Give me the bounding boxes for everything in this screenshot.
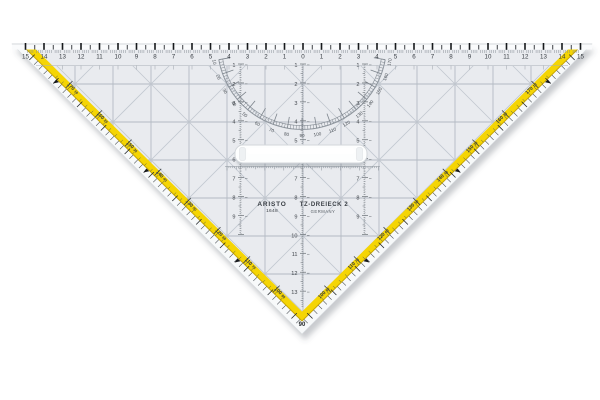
svg-text:9: 9 [232, 214, 235, 220]
svg-text:1: 1 [232, 63, 235, 69]
svg-text:5: 5 [232, 139, 235, 145]
svg-text:13: 13 [540, 54, 547, 61]
svg-text:2: 2 [294, 82, 297, 88]
svg-text:8: 8 [356, 195, 359, 201]
svg-text:3: 3 [246, 54, 250, 61]
set-square-photo: 1020304050607080901001101201301401501601… [0, 0, 600, 400]
top-ruler: 0123456789101112131415123456789101112131… [12, 43, 592, 70]
svg-text:14: 14 [559, 54, 566, 61]
svg-text:2: 2 [232, 82, 235, 88]
svg-text:9: 9 [135, 54, 139, 61]
brand-model-number: 1648 [266, 209, 278, 214]
svg-text:9: 9 [356, 214, 359, 220]
svg-text:3: 3 [294, 101, 297, 107]
svg-text:11: 11 [96, 54, 103, 61]
svg-text:7: 7 [431, 54, 435, 61]
svg-text:5: 5 [294, 139, 297, 145]
tip-90-degree-label: 90 [299, 322, 306, 328]
svg-text:2: 2 [338, 54, 342, 61]
svg-text:9: 9 [468, 54, 472, 61]
svg-text:5: 5 [209, 54, 213, 61]
svg-text:7: 7 [232, 177, 235, 183]
svg-text:4: 4 [232, 120, 235, 126]
svg-text:10: 10 [291, 233, 297, 239]
brand-name: ARISTO [257, 201, 286, 208]
svg-text:12: 12 [522, 54, 529, 61]
svg-text:9: 9 [294, 214, 297, 220]
set-square-drawing: 1020304050607080901001101201301401501601… [0, 0, 600, 400]
svg-text:12: 12 [78, 54, 85, 61]
svg-text:7: 7 [294, 177, 297, 183]
svg-text:14: 14 [41, 54, 48, 61]
svg-text:1: 1 [320, 54, 324, 61]
country-of-origin: GERMANY [311, 209, 336, 214]
grip-handle [235, 145, 367, 167]
svg-text:12: 12 [291, 271, 297, 277]
svg-text:7: 7 [172, 54, 176, 61]
svg-text:10: 10 [115, 54, 122, 61]
svg-text:8: 8 [449, 54, 453, 61]
svg-text:1: 1 [283, 54, 287, 61]
svg-text:4: 4 [294, 120, 297, 126]
svg-text:13: 13 [59, 54, 66, 61]
svg-text:1: 1 [356, 63, 359, 69]
svg-text:15: 15 [577, 54, 584, 61]
svg-text:11: 11 [503, 54, 510, 61]
svg-text:4: 4 [227, 54, 231, 61]
svg-text:2: 2 [356, 82, 359, 88]
svg-text:10: 10 [485, 54, 492, 61]
svg-text:13: 13 [291, 290, 297, 296]
svg-text:6: 6 [412, 54, 416, 61]
svg-text:3: 3 [232, 101, 235, 107]
svg-text:3: 3 [357, 54, 361, 61]
svg-text:2: 2 [264, 54, 268, 61]
svg-text:1: 1 [294, 63, 297, 69]
svg-text:8: 8 [153, 54, 157, 61]
svg-text:7: 7 [356, 177, 359, 183]
svg-text:4: 4 [356, 120, 359, 126]
svg-text:4: 4 [375, 54, 379, 61]
svg-text:11: 11 [292, 252, 298, 258]
svg-text:8: 8 [232, 195, 235, 201]
svg-text:5: 5 [394, 54, 398, 61]
svg-text:15: 15 [22, 54, 29, 61]
svg-text:6: 6 [190, 54, 194, 61]
svg-text:0: 0 [301, 54, 305, 61]
svg-text:3: 3 [356, 101, 359, 107]
svg-text:8: 8 [294, 195, 297, 201]
svg-text:5: 5 [356, 139, 359, 145]
product-name: TZ-DREIECK 2 [300, 202, 349, 208]
svg-text:6: 6 [232, 158, 235, 164]
